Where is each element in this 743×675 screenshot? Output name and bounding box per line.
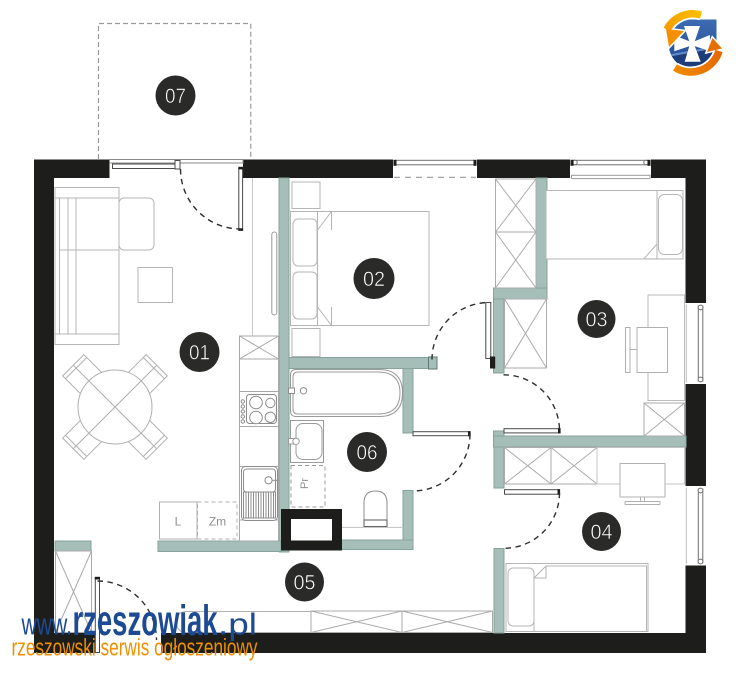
svg-text:07: 07 xyxy=(165,85,186,108)
svg-text:Zm: Zm xyxy=(209,515,226,529)
svg-text:L: L xyxy=(175,515,182,529)
svg-text:03: 03 xyxy=(586,309,608,332)
svg-text:01: 01 xyxy=(189,342,210,365)
svg-text:02: 02 xyxy=(363,268,385,291)
svg-text:rzeszowski serwis ogłoszeniowy: rzeszowski serwis ogłoszeniowy xyxy=(12,635,259,662)
svg-text:06: 06 xyxy=(357,442,378,465)
svg-text:04: 04 xyxy=(591,521,613,544)
svg-text:05: 05 xyxy=(294,572,316,595)
svg-text:Pr: Pr xyxy=(299,478,311,489)
